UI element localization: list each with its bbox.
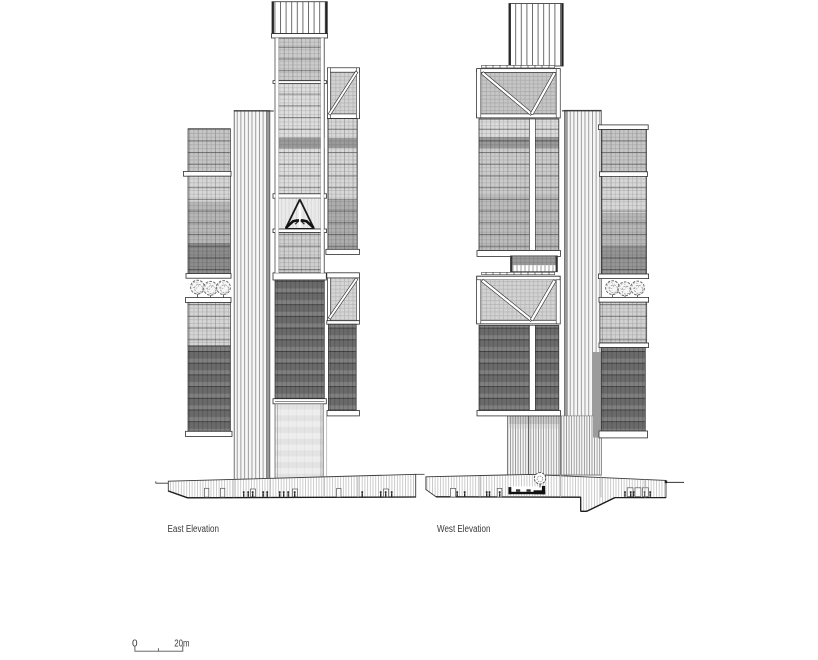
svg-text:20m: 20m — [174, 638, 189, 649]
svg-text:West Elevation: West Elevation — [437, 524, 491, 535]
svg-text:East Elevation: East Elevation — [168, 524, 220, 535]
svg-text:0: 0 — [132, 638, 138, 649]
